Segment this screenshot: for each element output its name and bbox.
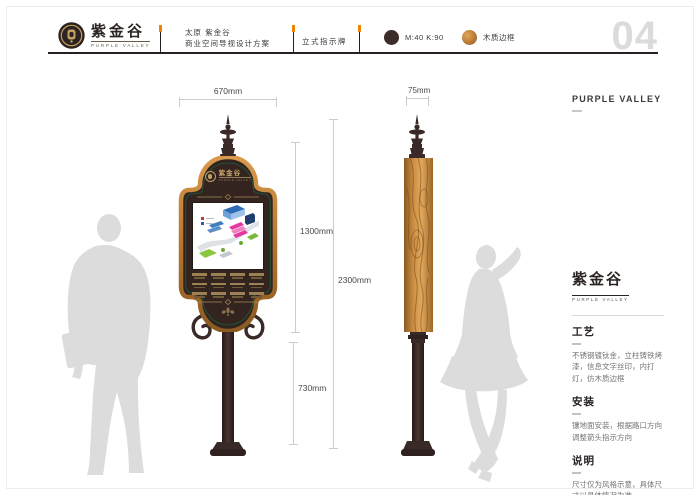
dim-pole-height: 730mm: [293, 342, 294, 445]
wood-swatch-icon: [462, 30, 477, 45]
info-logo-en: PURPLE VALLEY: [572, 295, 629, 302]
sign-board-logo: 紫金谷 PURPLE VALLEY: [178, 170, 278, 182]
section-body: 镶地面安装，根据路口方向调整箭头指示方向: [572, 420, 664, 443]
directory-entry: [211, 292, 226, 298]
orange-tick: [358, 25, 361, 32]
section-body: 不锈钢镀钛金，立柱铸铁烤漆，信息文字丝印，内打灯，仿木质边框: [572, 350, 664, 385]
sign-logo-cn: 紫金谷: [219, 170, 252, 177]
section-dash: [572, 343, 581, 345]
header-divider: [160, 27, 161, 52]
directory-entry: [192, 292, 207, 298]
header-brand-logo: 紫金谷 PURPLE VALLEY: [58, 22, 150, 49]
section-heading: 说明: [572, 453, 664, 468]
section-craft: 工艺 不锈钢镀钛金，立柱铸铁烤漆，信息文字丝印，内打灯，仿木质边框: [572, 324, 664, 384]
header-rule: [48, 52, 658, 54]
side-pole: [399, 332, 437, 458]
directory-entry: [192, 283, 207, 289]
info-title-dash: [572, 110, 582, 112]
header-divider: [359, 27, 360, 52]
wood-plank-side-view: [404, 158, 433, 332]
info-title: PURPLE VALLEY: [572, 94, 661, 104]
sign-logo-en: PURPLE VALLEY: [219, 177, 252, 182]
dim-line: [179, 99, 277, 100]
section-heading: 工艺: [572, 324, 664, 339]
info-divider: [572, 315, 664, 316]
site-map-graphic: [193, 203, 263, 269]
dim-label: 1300mm: [298, 226, 335, 236]
directory-entry: [249, 283, 264, 289]
dim-label: 75mm: [406, 86, 429, 95]
fleur-ornament-icon: [220, 307, 236, 317]
dim-board-height: 1300mm: [295, 142, 296, 333]
sign-logo-emblem-icon: [205, 171, 216, 182]
section-notes: 说明 尺寸仅为风格示意，具体尺寸以具体情况为准: [572, 453, 664, 495]
section-dash: [572, 472, 581, 474]
dim-label: 670mm: [179, 86, 277, 96]
gold-flourish-divider: [195, 299, 261, 305]
dim-total-height: 2300mm: [333, 119, 334, 449]
dim-label: 730mm: [296, 383, 328, 393]
brand-name-en: PURPLE VALLEY: [91, 41, 150, 48]
female-silhouette: [432, 242, 542, 487]
tenant-directory-list: [192, 273, 264, 298]
black-swatch-icon: [384, 30, 399, 45]
sign-board-front-view: 紫金谷 PURPLE VALLEY: [178, 156, 278, 332]
dim-side-width: 75mm: [406, 86, 429, 99]
male-silhouette: [52, 212, 172, 482]
directory-entry: [211, 273, 226, 279]
color-swatch-wood: 木质边框: [462, 30, 515, 45]
front-finial: [216, 114, 240, 160]
section-body: 尺寸仅为风格示意，具体尺寸以具体情况为准: [572, 479, 664, 495]
section-heading: 安装: [572, 394, 664, 409]
color-swatch-black: M:40 K:90: [384, 30, 444, 45]
dim-label: 2300mm: [336, 275, 373, 285]
brand-emblem-icon: [58, 22, 85, 49]
side-finial: [405, 114, 429, 160]
wood-swatch-label: 木质边框: [483, 32, 515, 43]
sign-type-label: 立式指示牌: [302, 36, 347, 47]
design-sheet-page: 紫金谷 PURPLE VALLEY 太原 紫金谷 商业空间导视设计方案 立式指示…: [0, 0, 700, 495]
section-dash: [572, 413, 581, 415]
project-line2: 商业空间导视设计方案: [185, 38, 270, 49]
directory-entry: [230, 273, 245, 279]
section-install: 安装 镶地面安装，根据路口方向调整箭头指示方向: [572, 394, 664, 443]
project-line1: 太原 紫金谷: [185, 27, 270, 38]
dim-line: [406, 98, 429, 99]
orange-tick: [159, 25, 162, 32]
orange-tick: [292, 25, 295, 32]
black-swatch-label: M:40 K:90: [405, 33, 444, 42]
dim-front-width: 670mm: [179, 86, 277, 100]
directory-entry: [230, 292, 245, 298]
gold-flourish-divider: [195, 194, 261, 200]
info-logo-cn: 紫金谷: [572, 271, 664, 288]
directory-entry: [192, 273, 207, 279]
directory-entry: [230, 283, 245, 289]
directory-entry: [249, 273, 264, 279]
front-pole: [206, 332, 250, 458]
project-title: 太原 紫金谷 商业空间导视设计方案: [185, 27, 270, 49]
site-map-panel: [193, 203, 263, 269]
directory-entry: [249, 292, 264, 298]
info-column: 紫金谷 PURPLE VALLEY 工艺 不锈钢镀钛金，立柱铸铁烤漆，信息文字丝…: [572, 271, 664, 495]
header-divider: [293, 27, 294, 52]
directory-entry: [211, 283, 226, 289]
brand-name-cn: 紫金谷: [91, 24, 150, 40]
